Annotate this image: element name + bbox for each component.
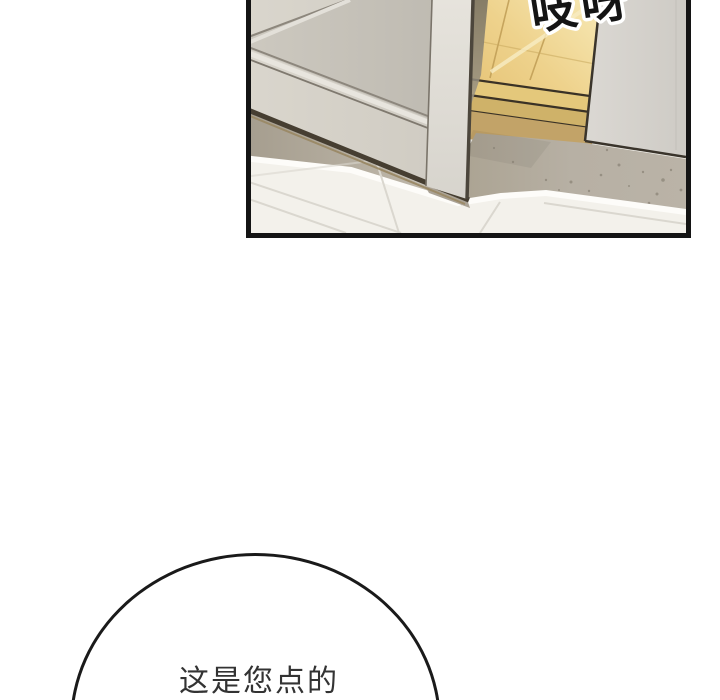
- speech-bubble-text: 这是您点的: [179, 666, 339, 698]
- comic-page: 吱呀 这是您点的: [0, 0, 720, 700]
- panel-artwork: 吱呀: [251, 0, 686, 233]
- comic-panel: 吱呀: [246, 0, 691, 238]
- door-edge-face: [426, 0, 473, 199]
